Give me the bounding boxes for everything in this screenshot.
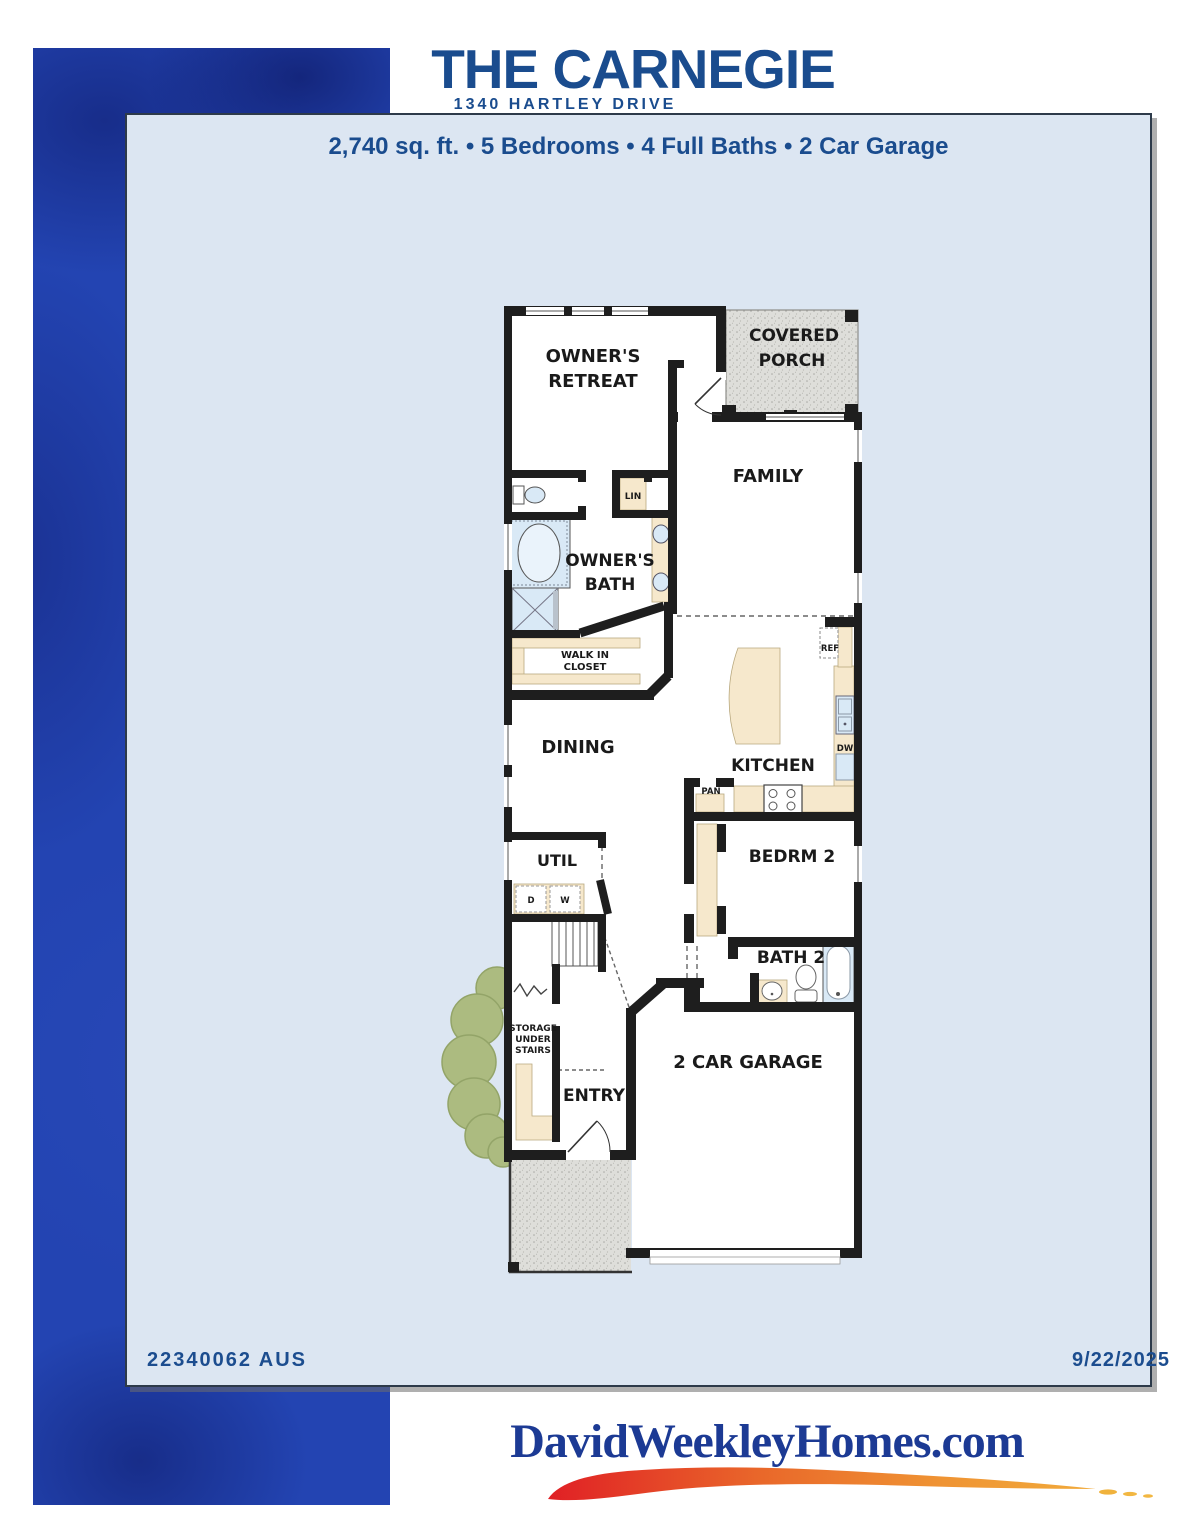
- label-walk-in-closet: CLOSET: [564, 662, 607, 673]
- bath2-sink-icon: [762, 982, 782, 1000]
- label-dining: DINING: [541, 737, 614, 758]
- flyer-page: THE CARNEGIE 1340 HARTLEY DRIVE 2,740 sq…: [0, 0, 1186, 1536]
- label-kitchen: KITCHEN: [731, 756, 815, 776]
- garage-door: [650, 1257, 840, 1264]
- label-owners-bath: BATH: [585, 575, 636, 595]
- toilet-tank-icon: [513, 486, 524, 504]
- label-util: UTIL: [537, 851, 577, 870]
- label-bath2: BATH 2: [757, 948, 825, 968]
- label-ref: REF: [821, 644, 839, 654]
- label-covered-porch: PORCH: [759, 351, 826, 371]
- website-logo: DavidWeekleyHomes.com: [417, 1414, 1117, 1469]
- label-bedrm2: BEDRM 2: [749, 847, 835, 867]
- label-storage: STORAGE: [509, 1024, 557, 1034]
- label-washer: W: [560, 896, 570, 906]
- toilet-bowl-icon: [525, 487, 545, 503]
- label-covered-porch: COVERED: [749, 326, 839, 346]
- label-lin: LIN: [625, 492, 642, 502]
- specs-line: 2,740 sq. ft. • 5 Bedrooms • 4 Full Bath…: [125, 133, 1152, 161]
- label-dw: DW: [837, 744, 854, 754]
- range-icon: [764, 785, 802, 814]
- plan-id: 22340062 AUS: [147, 1349, 307, 1372]
- label-owners-retreat: OWNER'S: [546, 346, 641, 367]
- kitchen-sink-icon: [836, 696, 854, 734]
- label-storage: UNDER: [515, 1035, 550, 1045]
- plan-date: 9/22/2025: [1010, 1349, 1170, 1372]
- label-owners-bath: OWNER'S: [565, 551, 655, 571]
- tub-basin: [518, 524, 560, 582]
- label-garage: 2 CAR GARAGE: [673, 1052, 823, 1073]
- dishwasher-icon: [836, 754, 854, 780]
- label-dryer: D: [527, 896, 534, 906]
- page-title: THE CARNEGIE: [323, 42, 943, 97]
- label-family: FAMILY: [733, 466, 804, 487]
- vanity-sink-icon: [653, 525, 669, 543]
- bath2-tub-icon: [823, 941, 854, 1005]
- shower-icon: [512, 588, 558, 632]
- label-owners-retreat: RETREAT: [548, 371, 638, 392]
- floor-plan: OWNER'S RETREAT COVERED PORCH FAMILY LIN…: [440, 293, 885, 1283]
- bath2-toilet-icon: [795, 965, 817, 1002]
- label-entry: ENTRY: [563, 1086, 626, 1106]
- address-subtitle: 1340 HARTLEY DRIVE: [365, 96, 765, 114]
- front-stoop-floor: [510, 1160, 631, 1272]
- logo-swoosh-icon: [535, 1465, 1160, 1510]
- label-walk-in-closet: WALK IN: [561, 650, 609, 661]
- label-storage: STAIRS: [515, 1046, 551, 1056]
- vanity-sink-icon: [653, 573, 669, 591]
- label-pan: PAN: [701, 787, 720, 797]
